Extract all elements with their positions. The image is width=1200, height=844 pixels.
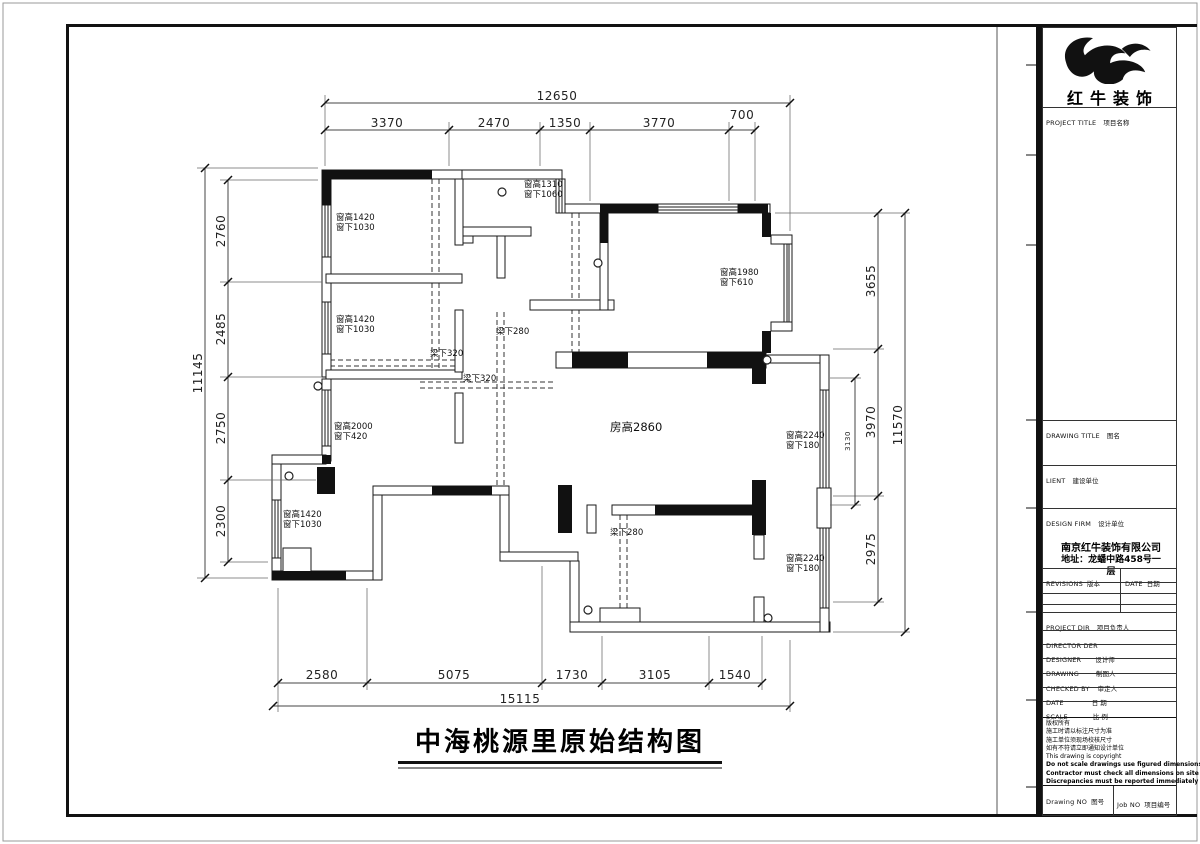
- revisions-row-line: [1043, 582, 1176, 583]
- dim-left-seg-3: 2750: [214, 412, 228, 445]
- dim-bottom-seg-5: 1540: [719, 668, 752, 682]
- checked-by-row: CHECKED BY审定人: [1043, 673, 1176, 687]
- wall-outlines: [272, 170, 831, 632]
- dim-top-seg-5: 700: [730, 108, 754, 122]
- logo-text: 红牛装饰: [1043, 85, 1176, 109]
- director-row: DIRECTOR DER: [1043, 630, 1176, 644]
- dim-bottom-seg-1: 2580: [306, 668, 339, 682]
- drawing-row: DRAWING制图人: [1043, 658, 1176, 673]
- beam-annotation: 梁下320: [463, 374, 496, 384]
- window-annotation: 窗高1420窗下1030: [283, 510, 322, 530]
- sheet-frame: [3, 3, 1197, 841]
- window-annotation: 窗高2000窗下420: [334, 422, 373, 442]
- project-title-label: PROJECT TITLE项目名称: [1043, 108, 1176, 122]
- firm-name: 南京红牛装饰有限公司: [1046, 539, 1176, 554]
- revisions-row-line: [1043, 604, 1176, 605]
- project-dir-row: PROJECT DIR项目负责人: [1043, 612, 1176, 630]
- logo-box: 红牛装饰: [1043, 28, 1176, 108]
- room-height-annotation: 房高2860: [610, 422, 662, 432]
- dim-right-seg-1: 3655: [864, 265, 878, 298]
- dim-left-seg-2: 2485: [214, 313, 228, 346]
- dim-top-seg-4: 3770: [643, 116, 676, 130]
- dim-right-total: 11570: [891, 405, 905, 446]
- rednbull-logo-icon: [1051, 30, 1171, 84]
- revisions-table: REVISIONS版本 DATE日期: [1043, 568, 1176, 612]
- revisions-row-line: [1043, 593, 1176, 594]
- window-annotation: 窗高1420窗下1030: [336, 315, 375, 335]
- dim-left-total: 11145: [191, 353, 205, 394]
- window-annotation: 窗高2240窗下180: [786, 431, 825, 451]
- drawing-title-section: DRAWING TITLE图名: [1043, 420, 1176, 465]
- revisions-label: REVISIONS版本: [1043, 569, 1100, 590]
- title-block: 红牛装饰 PROJECT TITLE项目名称 DRAWING TITLE图名 L…: [1042, 27, 1177, 816]
- dim-top-seg-2: 2470: [478, 116, 511, 130]
- dim-right-seg-2: 3970: [864, 406, 878, 439]
- designer-row: DESIGNER设计师: [1043, 644, 1176, 658]
- date-row: DATE日 期: [1043, 687, 1176, 701]
- numbers-divider: [1113, 786, 1114, 816]
- dim-top-seg-1: 3370: [371, 116, 404, 130]
- drawing-no-label: Drawing NO图号: [1043, 787, 1104, 808]
- floor-plan-svg: [0, 0, 1200, 844]
- beam-annotation: 梁下320: [430, 349, 463, 359]
- dim-left-seg-1: 2760: [214, 215, 228, 248]
- window-annotation: 窗高1980窗下610: [720, 268, 759, 288]
- dim-bottom-seg-3: 1730: [556, 668, 589, 682]
- notes-section: 版权所有 施工时请以标注尺寸为准 施工单位须现场校核尺寸 如有不符请立即通知设计…: [1043, 717, 1176, 786]
- window-symbols: [272, 179, 829, 608]
- dim-top-total: 12650: [537, 89, 578, 103]
- beam-annotation: 梁下280: [496, 327, 529, 337]
- drawing-sheet: 12650 3370 2470 1350 3770 700 11145 2760…: [0, 0, 1200, 844]
- dim-bottom-seg-4: 3105: [639, 668, 672, 682]
- dim-top-seg-3: 1350: [549, 116, 582, 130]
- revision-date-label: DATE日期: [1125, 571, 1160, 590]
- dim-bottom-total: 15115: [500, 692, 541, 706]
- dim-left-seg-4: 2300: [214, 505, 228, 538]
- window-annotation: 窗高2240窗下180: [786, 554, 825, 574]
- dim-right-seg-3: 2975: [864, 533, 878, 566]
- title-underline: [398, 761, 722, 768]
- numbers-row: Drawing NO图号 Job NO项目编号: [1043, 786, 1176, 816]
- window-annotation: 窗高1310窗下1060: [524, 180, 563, 200]
- sheet-title: 中海桃源里原始结构图: [415, 722, 705, 759]
- job-no-label: Job NO项目编号: [1117, 792, 1170, 811]
- dim-right-inner: 3130: [844, 431, 852, 451]
- beam-annotation: 梁下280: [610, 528, 643, 538]
- design-firm-section: DESIGN FIRM设计单位 南京红牛装饰有限公司 地址：龙蟠中路458号一层: [1043, 508, 1176, 568]
- revisions-divider: [1120, 569, 1121, 612]
- dim-bottom-seg-2: 5075: [438, 668, 471, 682]
- client-section: LIENT建设单位: [1043, 465, 1176, 508]
- window-annotation: 窗高1420窗下1030: [336, 213, 375, 233]
- scale-row: SCALE比 例: [1043, 701, 1176, 717]
